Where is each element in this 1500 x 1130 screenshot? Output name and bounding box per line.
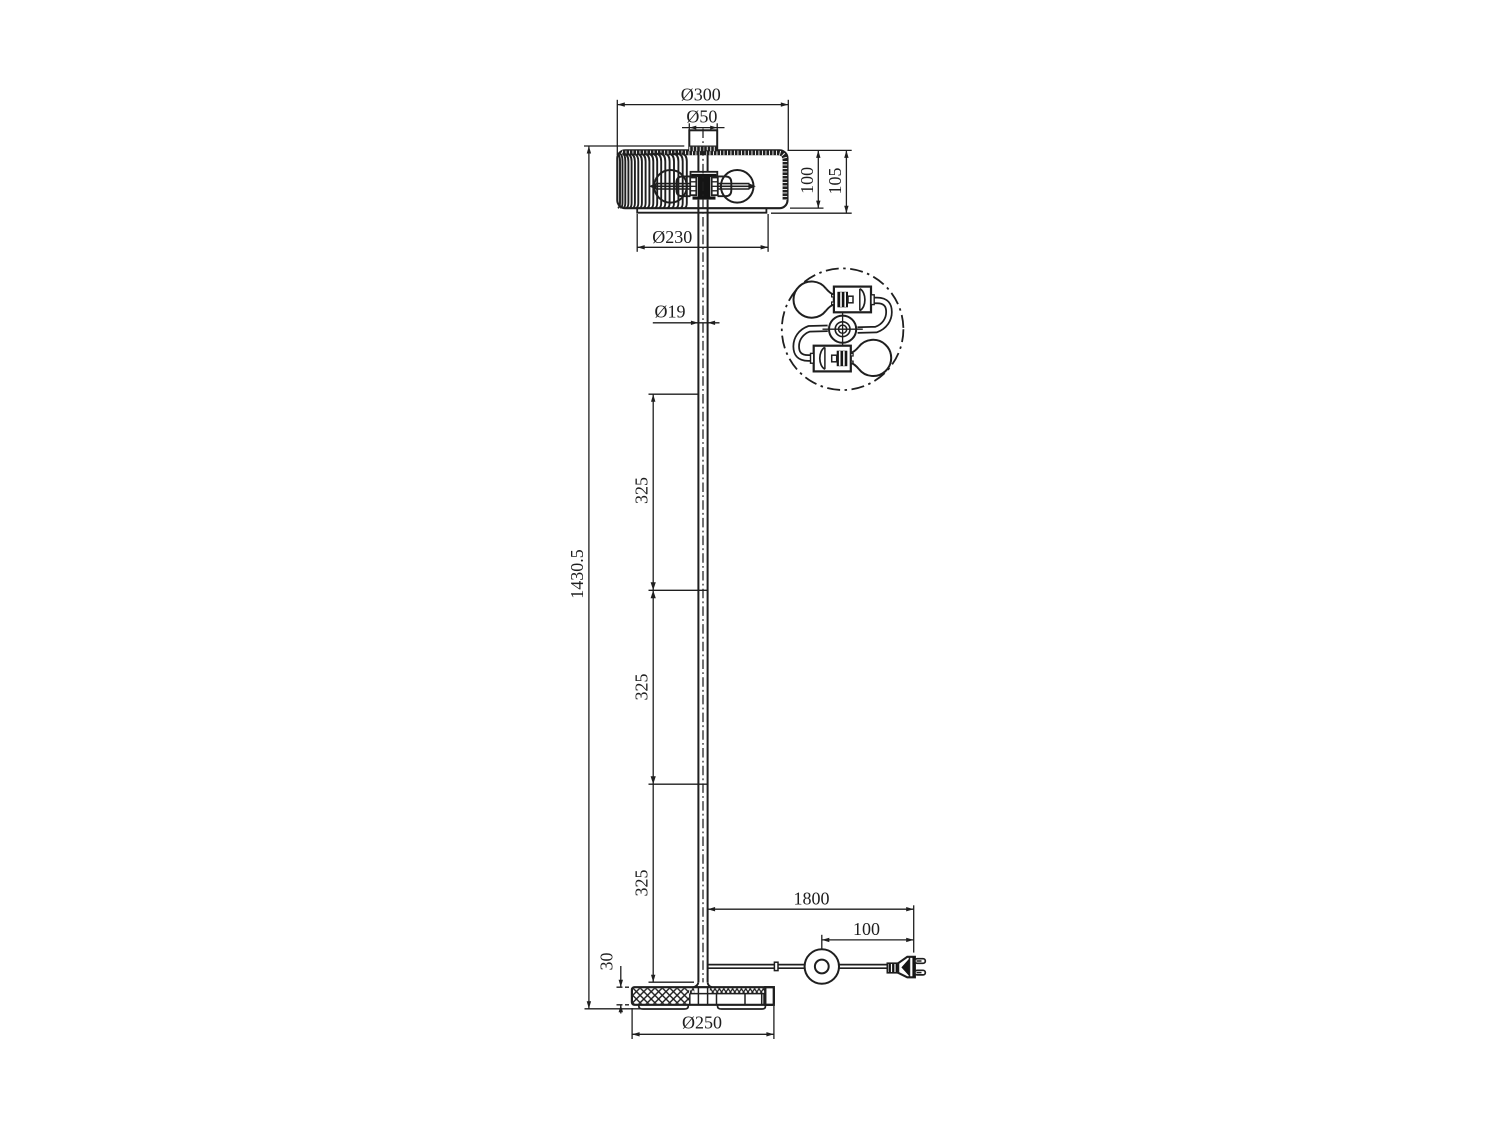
svg-text:Ø50: Ø50 — [686, 106, 717, 126]
svg-text:325: 325 — [632, 674, 652, 701]
svg-text:1800: 1800 — [794, 889, 830, 909]
svg-text:Ø250: Ø250 — [682, 1013, 722, 1033]
svg-text:Ø19: Ø19 — [655, 301, 686, 321]
svg-text:Ø230: Ø230 — [652, 227, 692, 247]
svg-text:105: 105 — [825, 168, 845, 195]
svg-text:100: 100 — [797, 167, 817, 194]
svg-text:325: 325 — [632, 477, 652, 504]
svg-text:100: 100 — [853, 919, 880, 939]
svg-text:Ø300: Ø300 — [681, 85, 721, 105]
svg-text:30: 30 — [597, 953, 617, 971]
svg-text:1430.5: 1430.5 — [567, 549, 587, 599]
svg-text:325: 325 — [632, 870, 652, 897]
